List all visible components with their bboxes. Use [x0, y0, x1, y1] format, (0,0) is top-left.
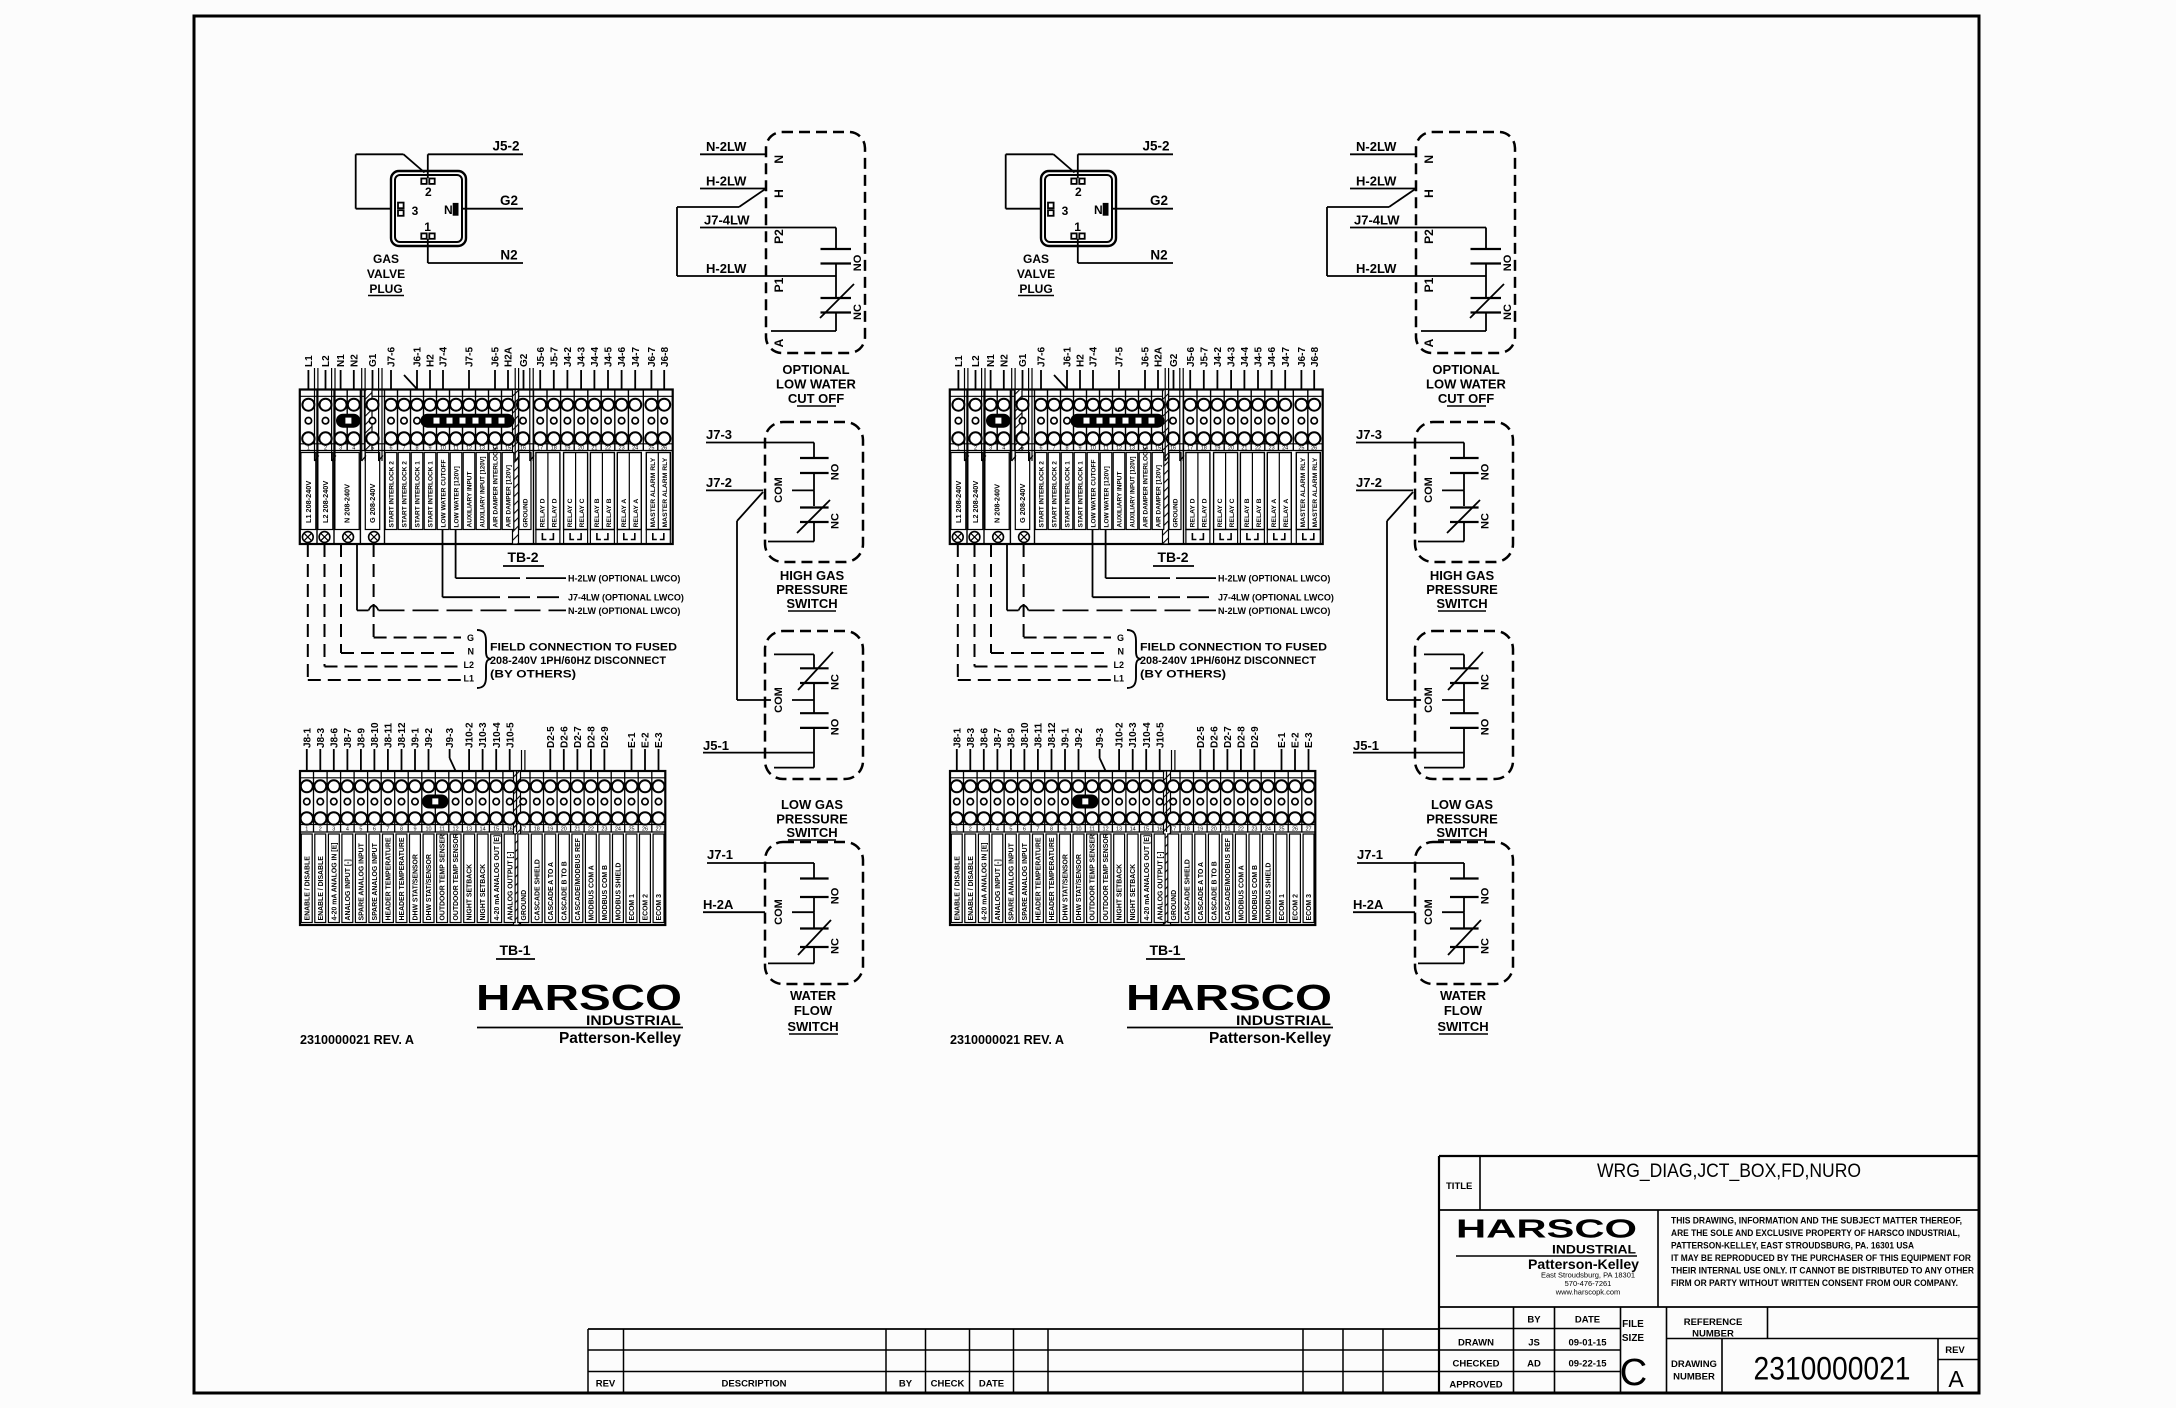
svg-text:4: 4 — [996, 827, 999, 833]
svg-text:L1: L1 — [304, 355, 315, 367]
svg-text:ECOM 3: ECOM 3 — [656, 894, 663, 921]
svg-text:START INTERLOCK 1: START INTERLOCK 1 — [415, 461, 422, 528]
svg-text:1: 1 — [307, 445, 310, 451]
svg-text:H-2LW (OPTIONAL LWCO): H-2LW (OPTIONAL LWCO) — [1218, 574, 1330, 584]
svg-text:24: 24 — [1282, 445, 1288, 451]
svg-text:N2: N2 — [349, 354, 360, 367]
svg-text:J6-8: J6-8 — [660, 347, 671, 367]
svg-text:J8-11: J8-11 — [384, 723, 395, 748]
svg-text:THIS DRAWING, INFORMATION AND: THIS DRAWING, INFORMATION AND THE SUBJEC… — [1671, 1216, 1962, 1226]
svg-text:21: 21 — [1241, 445, 1247, 451]
svg-text:J8-6: J8-6 — [979, 728, 990, 748]
svg-text:CUT OFF: CUT OFF — [1438, 391, 1494, 406]
svg-text:NC: NC — [1502, 304, 1514, 320]
svg-text:12: 12 — [453, 827, 459, 833]
svg-text:5: 5 — [1021, 445, 1024, 451]
svg-text:G2: G2 — [1150, 193, 1168, 208]
svg-text:17: 17 — [1170, 827, 1176, 833]
svg-text:FILE: FILE — [1622, 1319, 1644, 1330]
svg-text:HIGH GAS: HIGH GAS — [780, 568, 845, 583]
svg-text:J10-5: J10-5 — [1155, 722, 1166, 748]
svg-text:NC: NC — [830, 513, 842, 529]
svg-text:N: N — [468, 647, 475, 657]
svg-text:D2-6: D2-6 — [1209, 726, 1220, 748]
svg-text:PRESSURE: PRESSURE — [1426, 582, 1498, 597]
svg-text:8: 8 — [415, 445, 418, 451]
svg-text:E-2: E-2 — [1291, 732, 1302, 748]
svg-text:26: 26 — [1292, 827, 1298, 833]
svg-text:VALVE: VALVE — [367, 267, 405, 281]
svg-text:14: 14 — [480, 827, 486, 833]
svg-text:ARE THE SOLE AND EXCLUSIVE PRO: ARE THE SOLE AND EXCLUSIVE PROPERTY OF H… — [1671, 1228, 1960, 1238]
svg-text:15: 15 — [1155, 445, 1161, 451]
svg-text:20: 20 — [1228, 445, 1234, 451]
svg-text:J8-12: J8-12 — [1047, 722, 1058, 748]
svg-text:1: 1 — [305, 827, 308, 833]
svg-text:4: 4 — [1002, 445, 1005, 451]
svg-text:J7-3: J7-3 — [1356, 427, 1382, 442]
svg-text:GAS: GAS — [373, 252, 399, 266]
svg-text:RELAY C: RELAY C — [579, 498, 586, 527]
svg-text:H: H — [1422, 189, 1436, 198]
svg-text:J7-5: J7-5 — [1115, 347, 1126, 367]
svg-text:G2: G2 — [519, 353, 530, 367]
svg-text:J10-4: J10-4 — [1142, 722, 1153, 748]
svg-text:NC: NC — [830, 938, 842, 954]
svg-text:P1: P1 — [772, 277, 786, 292]
svg-text:2310000021 REV. A: 2310000021 REV. A — [950, 1032, 1065, 1047]
svg-text:21: 21 — [591, 445, 597, 451]
svg-text:23: 23 — [619, 445, 625, 451]
svg-text:J4-2: J4-2 — [563, 347, 574, 367]
svg-text:3: 3 — [332, 827, 335, 833]
svg-text:CHECK: CHECK — [931, 1379, 965, 1390]
svg-text:J5-2: J5-2 — [1142, 139, 1169, 154]
svg-text:J7-3: J7-3 — [706, 427, 732, 442]
svg-text:6: 6 — [389, 445, 392, 451]
svg-text:15: 15 — [493, 827, 499, 833]
svg-text:J7-1: J7-1 — [1357, 847, 1383, 862]
svg-text:9: 9 — [428, 445, 431, 451]
svg-text:IT MAY BE REPRODUCED BY THE PU: IT MAY BE REPRODUCED BY THE PURCHASER OF… — [1671, 1253, 1971, 1263]
svg-text:18: 18 — [551, 445, 557, 451]
svg-text:Patterson-Kelley: Patterson-Kelley — [559, 1030, 681, 1047]
svg-text:2310000021 REV. A: 2310000021 REV. A — [300, 1032, 415, 1047]
svg-text:REV: REV — [596, 1379, 616, 1390]
svg-text:WATER: WATER — [790, 988, 837, 1003]
svg-text:ECOM 2: ECOM 2 — [643, 894, 650, 921]
svg-text:J6-7: J6-7 — [1297, 347, 1308, 367]
svg-text:NIGHT SETBACK: NIGHT SETBACK — [480, 864, 487, 921]
svg-text:J9-2: J9-2 — [424, 728, 435, 748]
svg-text:N1: N1 — [986, 354, 997, 367]
svg-text:ECOM 3: ECOM 3 — [1306, 894, 1313, 921]
svg-text:10: 10 — [425, 827, 431, 833]
svg-text:5: 5 — [371, 445, 374, 451]
svg-text:START INTERLOCK 2: START INTERLOCK 2 — [389, 461, 396, 528]
svg-text:LOW WATER CUTOFF: LOW WATER CUTOFF — [1091, 459, 1098, 527]
svg-text:CASCADE B TO B: CASCADE B TO B — [1211, 861, 1218, 920]
svg-text:17: 17 — [537, 445, 543, 451]
svg-text:H-2LW (OPTIONAL LWCO): H-2LW (OPTIONAL LWCO) — [568, 574, 680, 584]
svg-text:HEADER TEMPERATURE: HEADER TEMPERATURE — [1049, 837, 1056, 920]
svg-text:MODBUS COM B: MODBUS COM B — [602, 865, 609, 921]
svg-text:J8-11: J8-11 — [1034, 723, 1045, 748]
svg-text:13: 13 — [1129, 445, 1135, 451]
svg-text:7: 7 — [1036, 827, 1039, 833]
svg-text:15: 15 — [1143, 827, 1149, 833]
svg-text:AD: AD — [1527, 1359, 1541, 1370]
svg-text:HEADER TEMPERATURE: HEADER TEMPERATURE — [386, 837, 393, 920]
svg-text:N: N — [444, 203, 453, 217]
svg-text:CASCADE SHIELD: CASCADE SHIELD — [1184, 859, 1191, 920]
svg-text:7: 7 — [386, 827, 389, 833]
svg-text:J7-2: J7-2 — [1356, 475, 1382, 490]
svg-text:4-20 mA ANALOG OUT [E]: 4-20 mA ANALOG OUT [E] — [494, 835, 501, 921]
svg-text:NO: NO — [852, 254, 864, 271]
svg-text:TB-2: TB-2 — [507, 549, 538, 565]
svg-text:J8-1: J8-1 — [952, 728, 963, 748]
svg-text:N: N — [1422, 155, 1436, 164]
svg-text:J4-3: J4-3 — [1227, 347, 1238, 367]
svg-text:J7-4LW (OPTIONAL LWCO): J7-4LW (OPTIONAL LWCO) — [1218, 593, 1334, 603]
svg-text:19: 19 — [547, 827, 553, 833]
svg-text:THEIR INTERNAL USE ONLY. IT CA: THEIR INTERNAL USE ONLY. IT CANNOT BE DI… — [1671, 1266, 1974, 1276]
svg-text:13: 13 — [479, 445, 485, 451]
svg-text:H2A: H2A — [1154, 347, 1165, 367]
svg-text:G2: G2 — [1169, 353, 1180, 367]
svg-text:PLUG: PLUG — [369, 282, 402, 296]
svg-text:GROUND: GROUND — [521, 890, 528, 921]
svg-text:ENABLE / DISABLE: ENABLE / DISABLE — [318, 856, 325, 921]
svg-text:1: 1 — [957, 445, 960, 451]
svg-text:MODBUS SHIELD: MODBUS SHIELD — [1266, 863, 1273, 921]
svg-text:J4-6: J4-6 — [1267, 347, 1278, 367]
svg-text:ECOM 2: ECOM 2 — [1293, 894, 1300, 921]
svg-text:L2: L2 — [1113, 660, 1124, 670]
svg-text:L1: L1 — [1113, 674, 1124, 684]
svg-text:208-240V 1PH/60HZ DISCONNECT: 208-240V 1PH/60HZ DISCONNECT — [490, 655, 666, 667]
svg-text:MODBUS COM A: MODBUS COM A — [589, 865, 596, 920]
svg-text:J8-9: J8-9 — [357, 728, 368, 748]
svg-text:HEADER TEMPERATURE: HEADER TEMPERATURE — [399, 837, 406, 920]
svg-text:RELAY D: RELAY D — [540, 498, 547, 527]
svg-text:E-2: E-2 — [641, 732, 652, 748]
svg-text:L1 208-240V: L1 208-240V — [304, 481, 313, 523]
svg-text:J10-4: J10-4 — [492, 722, 503, 748]
svg-text:DRAWN: DRAWN — [1458, 1338, 1494, 1349]
svg-text:LOW WATER: LOW WATER — [776, 377, 857, 392]
svg-text:LOW WATER CUTOFF: LOW WATER CUTOFF — [441, 459, 448, 527]
svg-text:J6-7: J6-7 — [647, 347, 658, 367]
svg-text:NIGHT SETBACK: NIGHT SETBACK — [1117, 864, 1124, 921]
svg-text:TB-1: TB-1 — [1149, 942, 1180, 958]
svg-text:NO: NO — [1480, 718, 1492, 735]
svg-text:5: 5 — [1009, 827, 1012, 833]
svg-text:CASCADE/MODBUS REF: CASCADE/MODBUS REF — [575, 838, 582, 920]
svg-text:N 208-240V: N 208-240V — [343, 484, 352, 523]
svg-text:J6-8: J6-8 — [1310, 347, 1321, 367]
svg-text:J4-5: J4-5 — [604, 347, 615, 367]
svg-text:ANALOG INPUT [-]: ANALOG INPUT [-] — [345, 859, 352, 920]
svg-text:AUXILIARY INPUT [120V]: AUXILIARY INPUT [120V] — [480, 457, 487, 528]
svg-text:23: 23 — [601, 827, 607, 833]
svg-text:TB-2: TB-2 — [1157, 549, 1188, 565]
svg-text:16: 16 — [520, 445, 526, 451]
svg-text:PATTERSON-KELLEY, EAST STROUDS: PATTERSON-KELLEY, EAST STROUDSBURG, PA. … — [1671, 1241, 1914, 1251]
svg-text:G: G — [467, 633, 474, 643]
svg-text:NC: NC — [1480, 513, 1492, 529]
svg-text:J4-2: J4-2 — [1213, 347, 1224, 367]
svg-text:J5-6: J5-6 — [536, 347, 547, 367]
svg-text:L2: L2 — [971, 355, 982, 367]
svg-text:J6-5: J6-5 — [1141, 347, 1152, 367]
svg-text:RELAY D: RELAY D — [552, 498, 559, 527]
svg-text:OPTIONAL: OPTIONAL — [782, 362, 849, 377]
svg-text:26: 26 — [642, 827, 648, 833]
svg-text:J8-7: J8-7 — [343, 728, 354, 748]
svg-text:PLUG: PLUG — [1019, 282, 1052, 296]
svg-text:J9-1: J9-1 — [1061, 728, 1072, 748]
svg-text:H-2LW: H-2LW — [706, 261, 747, 276]
svg-text:H2: H2 — [426, 354, 437, 367]
svg-text:FLOW: FLOW — [794, 1003, 833, 1018]
svg-text:D2-6: D2-6 — [559, 726, 570, 748]
svg-text:WATER: WATER — [1440, 988, 1487, 1003]
svg-text:GAS: GAS — [1023, 252, 1049, 266]
svg-text:H2A: H2A — [504, 347, 515, 367]
svg-text:J5-7: J5-7 — [549, 347, 560, 367]
svg-text:ANALOG INPUT [-]: ANALOG INPUT [-] — [995, 859, 1002, 920]
svg-text:OUTDOOR TEMP SENSOR: OUTDOOR TEMP SENSOR — [1103, 833, 1110, 920]
svg-text:J10-3: J10-3 — [1128, 722, 1139, 748]
svg-text:CASCADE SHIELD: CASCADE SHIELD — [534, 859, 541, 920]
svg-text:J7-6: J7-6 — [387, 347, 398, 367]
svg-text:2: 2 — [1075, 185, 1082, 199]
svg-text:RELAY D: RELAY D — [1190, 498, 1197, 527]
svg-text:5: 5 — [359, 827, 362, 833]
svg-text:7: 7 — [1052, 445, 1055, 451]
svg-text:CASCADE B TO B: CASCADE B TO B — [561, 861, 568, 920]
svg-text:CASCADE/MODBUS REF: CASCADE/MODBUS REF — [1225, 838, 1232, 920]
svg-text:J4-4: J4-4 — [590, 347, 601, 367]
svg-text:09-22-15: 09-22-15 — [1568, 1359, 1607, 1370]
svg-text:N2: N2 — [500, 248, 517, 263]
svg-text:4: 4 — [352, 445, 355, 451]
svg-text:OUTDOOR TEMP SENSER: OUTDOOR TEMP SENSER — [440, 834, 447, 920]
svg-text:21: 21 — [1224, 827, 1230, 833]
svg-text:19: 19 — [564, 445, 570, 451]
svg-text:ANALOG OUTPUT [-]: ANALOG OUTPUT [-] — [507, 852, 514, 921]
svg-text:10: 10 — [1075, 827, 1081, 833]
svg-text:C: C — [1620, 1352, 1647, 1394]
svg-text:J8-9: J8-9 — [1007, 728, 1018, 748]
svg-text:17: 17 — [1187, 445, 1193, 451]
svg-text:SWITCH: SWITCH — [1437, 1019, 1488, 1034]
svg-text:NUMBER: NUMBER — [1673, 1372, 1715, 1383]
svg-text:J10-5: J10-5 — [505, 722, 516, 748]
svg-text:3: 3 — [1062, 204, 1069, 218]
svg-text:NC: NC — [1480, 674, 1492, 690]
svg-text:OUTDOOR TEMP SENSOR: OUTDOOR TEMP SENSOR — [453, 833, 460, 920]
svg-text:J4-7: J4-7 — [631, 347, 642, 367]
svg-text:NO: NO — [830, 463, 842, 480]
svg-text:2: 2 — [319, 827, 322, 833]
svg-text:AIR DAMPER [120V]: AIR DAMPER [120V] — [1156, 465, 1163, 527]
svg-text:24: 24 — [615, 827, 621, 833]
svg-text:REFERENCE: REFERENCE — [1684, 1317, 1743, 1328]
svg-text:TB-1: TB-1 — [499, 942, 530, 958]
svg-text:22: 22 — [605, 445, 611, 451]
svg-text:3: 3 — [412, 204, 419, 218]
svg-text:CHECKED: CHECKED — [1453, 1359, 1500, 1370]
svg-text:LOW GAS: LOW GAS — [781, 797, 843, 812]
svg-text:22: 22 — [1238, 827, 1244, 833]
svg-text:COM: COM — [773, 899, 785, 925]
svg-text:NO: NO — [830, 718, 842, 735]
svg-text:AIR DAMPER [120V]: AIR DAMPER [120V] — [506, 465, 513, 527]
svg-text:3: 3 — [989, 445, 992, 451]
svg-text:L2 208-240V: L2 208-240V — [971, 481, 980, 523]
svg-text:H-2LW: H-2LW — [1356, 174, 1397, 189]
svg-text:18: 18 — [1201, 445, 1207, 451]
svg-text:(BY OTHERS): (BY OTHERS) — [490, 669, 576, 681]
svg-text:9: 9 — [413, 827, 416, 833]
svg-text:OUTDOOR TEMP SENSER: OUTDOOR TEMP SENSER — [1090, 834, 1097, 920]
svg-text:11: 11 — [1089, 827, 1095, 833]
svg-text:18: 18 — [534, 827, 540, 833]
svg-text:J7-4LW: J7-4LW — [1354, 213, 1400, 228]
svg-text:INDUSTRIAL: INDUSTRIAL — [1552, 1243, 1636, 1257]
svg-text:J7-5: J7-5 — [465, 347, 476, 367]
svg-text:D2-5: D2-5 — [1196, 726, 1207, 748]
svg-text:3: 3 — [339, 445, 342, 451]
svg-text:SWITCH: SWITCH — [1436, 825, 1487, 840]
svg-text:NC: NC — [852, 304, 864, 320]
svg-text:19: 19 — [1197, 827, 1203, 833]
svg-text:RELAY B: RELAY B — [1244, 498, 1251, 527]
svg-text:TITLE: TITLE — [1446, 1181, 1472, 1192]
svg-text:23: 23 — [1251, 827, 1257, 833]
svg-text:J9-3: J9-3 — [445, 728, 456, 748]
svg-text:J7-2: J7-2 — [706, 475, 732, 490]
svg-text:G2: G2 — [500, 193, 518, 208]
svg-text:12: 12 — [1103, 827, 1109, 833]
svg-text:NO: NO — [1480, 887, 1492, 904]
svg-text:J7-4: J7-4 — [439, 347, 450, 367]
svg-text:11: 11 — [439, 827, 445, 833]
svg-text:J5-1: J5-1 — [703, 738, 729, 753]
svg-text:J5-1: J5-1 — [1353, 738, 1379, 753]
svg-text:NIGHT SETBACK: NIGHT SETBACK — [467, 864, 474, 921]
svg-text:J6-1: J6-1 — [1063, 347, 1074, 367]
svg-text:JS: JS — [1528, 1338, 1540, 1349]
svg-text:SPARE ANALOG INPUT: SPARE ANALOG INPUT — [1022, 842, 1029, 920]
svg-text:COM: COM — [1423, 477, 1435, 503]
svg-text:BY: BY — [899, 1379, 913, 1390]
svg-text:25: 25 — [628, 827, 634, 833]
svg-text:4: 4 — [346, 827, 349, 833]
svg-text:19: 19 — [1214, 445, 1220, 451]
svg-text:J5-7: J5-7 — [1199, 347, 1210, 367]
svg-text:1: 1 — [424, 220, 431, 234]
svg-text:2: 2 — [974, 445, 977, 451]
svg-text:NUMBER: NUMBER — [1692, 1329, 1734, 1340]
svg-text:D2-5: D2-5 — [546, 726, 557, 748]
svg-text:6: 6 — [373, 827, 376, 833]
svg-text:E-3: E-3 — [654, 732, 665, 748]
svg-text:N 208-240V: N 208-240V — [993, 484, 1002, 523]
svg-text:AIR DAMPER INTERLOCK: AIR DAMPER INTERLOCK — [493, 446, 500, 527]
svg-text:J9-3: J9-3 — [1095, 728, 1106, 748]
svg-text:H-2LW: H-2LW — [1356, 261, 1397, 276]
svg-text:N-2LW (OPTIONAL LWCO): N-2LW (OPTIONAL LWCO) — [1218, 606, 1330, 616]
svg-text:9: 9 — [1063, 827, 1066, 833]
svg-text:MASTER ALARM RLY: MASTER ALARM RLY — [1300, 457, 1307, 527]
svg-text:RELAY D: RELAY D — [1202, 498, 1209, 527]
svg-text:12: 12 — [466, 445, 472, 451]
svg-text:SWITCH: SWITCH — [1436, 596, 1487, 611]
svg-text:DHW STAT/SENSOR: DHW STAT/SENSOR — [413, 854, 420, 920]
svg-text:START INTERLOCK 1: START INTERLOCK 1 — [1065, 461, 1072, 528]
svg-text:COM: COM — [1423, 687, 1435, 713]
svg-text:13: 13 — [1116, 827, 1122, 833]
svg-text:L1: L1 — [463, 674, 474, 684]
svg-text:15: 15 — [505, 445, 511, 451]
svg-text:4-20 mA ANALOG IN [E]: 4-20 mA ANALOG IN [E] — [331, 843, 338, 921]
svg-text:7: 7 — [402, 445, 405, 451]
svg-text:N: N — [772, 155, 786, 164]
svg-text:NC: NC — [830, 674, 842, 690]
svg-text:25: 25 — [1278, 827, 1284, 833]
svg-text:J8-3: J8-3 — [966, 728, 977, 748]
svg-text:J8-10: J8-10 — [1020, 722, 1031, 748]
svg-text:NO: NO — [1502, 254, 1514, 271]
svg-text:START INTERLOCK 2: START INTERLOCK 2 — [402, 461, 409, 528]
svg-text:1: 1 — [955, 827, 958, 833]
svg-text:16: 16 — [1157, 827, 1163, 833]
svg-text:J7-4: J7-4 — [1089, 347, 1100, 367]
svg-text:L1: L1 — [954, 355, 965, 367]
svg-text:DATE: DATE — [979, 1379, 1004, 1390]
svg-text:2: 2 — [969, 827, 972, 833]
svg-text:RELAY C: RELAY C — [567, 498, 574, 527]
svg-text:10: 10 — [1090, 445, 1096, 451]
svg-text:8: 8 — [1065, 445, 1068, 451]
svg-text:RELAY C: RELAY C — [1217, 498, 1224, 527]
svg-text:4-20 mA ANALOG OUT [E]: 4-20 mA ANALOG OUT [E] — [1144, 835, 1151, 921]
svg-text:ENABLE / DISABLE: ENABLE / DISABLE — [968, 856, 975, 921]
svg-text:RELAY C: RELAY C — [1229, 498, 1236, 527]
svg-text:SPARE ANALOG INPUT: SPARE ANALOG INPUT — [1009, 842, 1016, 920]
svg-text:NO: NO — [830, 887, 842, 904]
svg-text:L2: L2 — [321, 355, 332, 367]
svg-text:VALVE: VALVE — [1017, 267, 1055, 281]
svg-text:J5-6: J5-6 — [1186, 347, 1197, 367]
svg-text:H-2A: H-2A — [703, 897, 734, 912]
svg-text:Patterson-Kelley: Patterson-Kelley — [1209, 1030, 1331, 1047]
svg-text:J8-12: J8-12 — [397, 722, 408, 748]
svg-text:N-2LW: N-2LW — [1356, 139, 1397, 154]
svg-text:GROUND: GROUND — [523, 498, 530, 527]
svg-text:16: 16 — [1170, 445, 1176, 451]
svg-text:HARSCO: HARSCO — [1456, 1214, 1637, 1244]
svg-text:H-2A: H-2A — [1353, 897, 1384, 912]
svg-text:J6-1: J6-1 — [413, 347, 424, 367]
svg-text:4-20 mA ANALOG IN [E]: 4-20 mA ANALOG IN [E] — [981, 843, 988, 921]
svg-text:27: 27 — [1305, 827, 1311, 833]
svg-text:J9-1: J9-1 — [411, 728, 422, 748]
